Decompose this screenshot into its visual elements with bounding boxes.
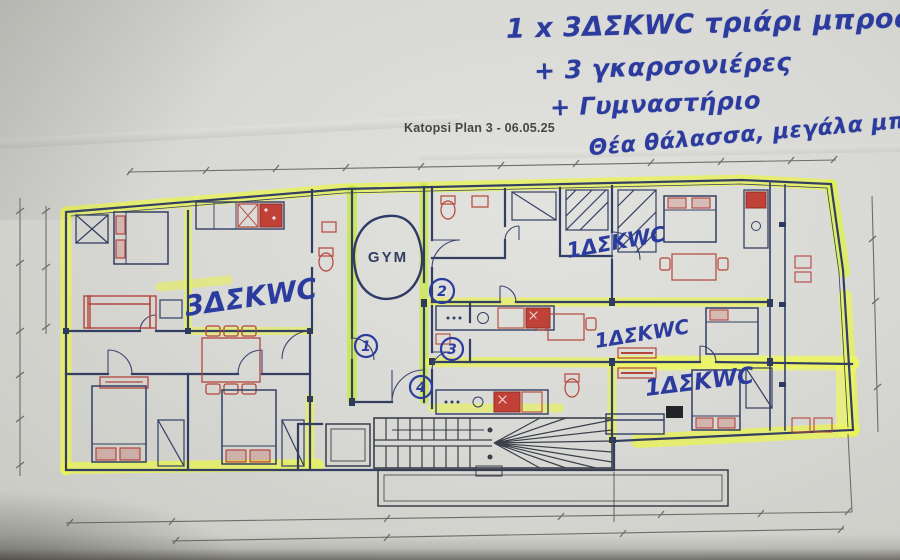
dimension-line-bottom1	[66, 512, 852, 523]
circled-number-1-text: 1	[361, 339, 371, 355]
gym-walls	[352, 187, 424, 402]
stair-arrow-dot	[488, 428, 493, 433]
bathroom-fixtures	[319, 222, 336, 271]
unit-label-1dskwc-top: 1ΔΣΚWC	[565, 222, 668, 263]
door-arc	[238, 350, 262, 374]
photo-of-floor-plan: GYM 3ΔΣΚWC 1ΔΣΚWC 1ΔΣΚWC 1ΔΣΚWC 1 2 3 4	[0, 0, 900, 560]
double-bed	[114, 212, 168, 264]
tv-black	[666, 406, 683, 418]
highlight-bottom-left-wall	[66, 465, 318, 468]
door-arc	[282, 331, 310, 359]
sofa	[84, 296, 156, 328]
shower	[512, 192, 556, 220]
plan-title: Katopsi Plan 3 - 06.05.25	[404, 121, 555, 135]
staircase	[374, 418, 612, 468]
wardrobe	[282, 420, 304, 466]
bed-vertical	[92, 386, 146, 462]
dimension-line-top	[128, 160, 836, 172]
coffee-table	[160, 300, 182, 318]
circled-number-3: 3	[441, 338, 463, 360]
stair-fan	[494, 418, 612, 468]
floor-plan-drawing: GYM 3ΔΣΚWC 1ΔΣΚWC 1ΔΣΚWC 1ΔΣΚWC 1 2 3 4	[0, 0, 900, 560]
circled-number-4-text: 4	[415, 380, 426, 396]
circled-number-1: 1	[355, 335, 377, 357]
stair-rails	[374, 440, 492, 446]
dining-table	[202, 326, 260, 394]
terrace	[378, 466, 728, 506]
stair-arrow-dot	[488, 455, 493, 460]
circled-number-2: 2	[430, 279, 454, 303]
gym-label: GYM	[368, 249, 408, 266]
table-and-chairs	[660, 254, 728, 280]
balcony-chairs	[792, 256, 832, 432]
stair-risers	[386, 418, 470, 468]
wardrobe	[158, 420, 184, 466]
kitchen-counter	[196, 202, 284, 229]
dimension-line-right	[872, 196, 878, 432]
door-arc	[432, 240, 460, 268]
dimension-line-bottom2	[172, 529, 844, 541]
door-arc	[505, 226, 519, 240]
circled-number-2-text: 2	[437, 284, 447, 300]
wc-fixtures	[565, 374, 579, 397]
double-bed	[664, 196, 716, 242]
door-arc	[108, 350, 132, 374]
unit-label-1dskwc-middle: 1ΔΣΚWC	[593, 314, 691, 353]
wc-fixtures	[441, 196, 488, 219]
wardrobe	[76, 215, 108, 243]
double-bed	[706, 308, 758, 354]
kitchen-counter-vertical	[744, 190, 768, 248]
bed-vertical	[222, 390, 276, 464]
circled-number-3-text: 3	[447, 342, 457, 358]
circulation-core	[326, 418, 728, 506]
closet-hatched	[566, 190, 608, 230]
circled-number-4: 4	[410, 376, 432, 398]
elevator	[326, 424, 370, 466]
